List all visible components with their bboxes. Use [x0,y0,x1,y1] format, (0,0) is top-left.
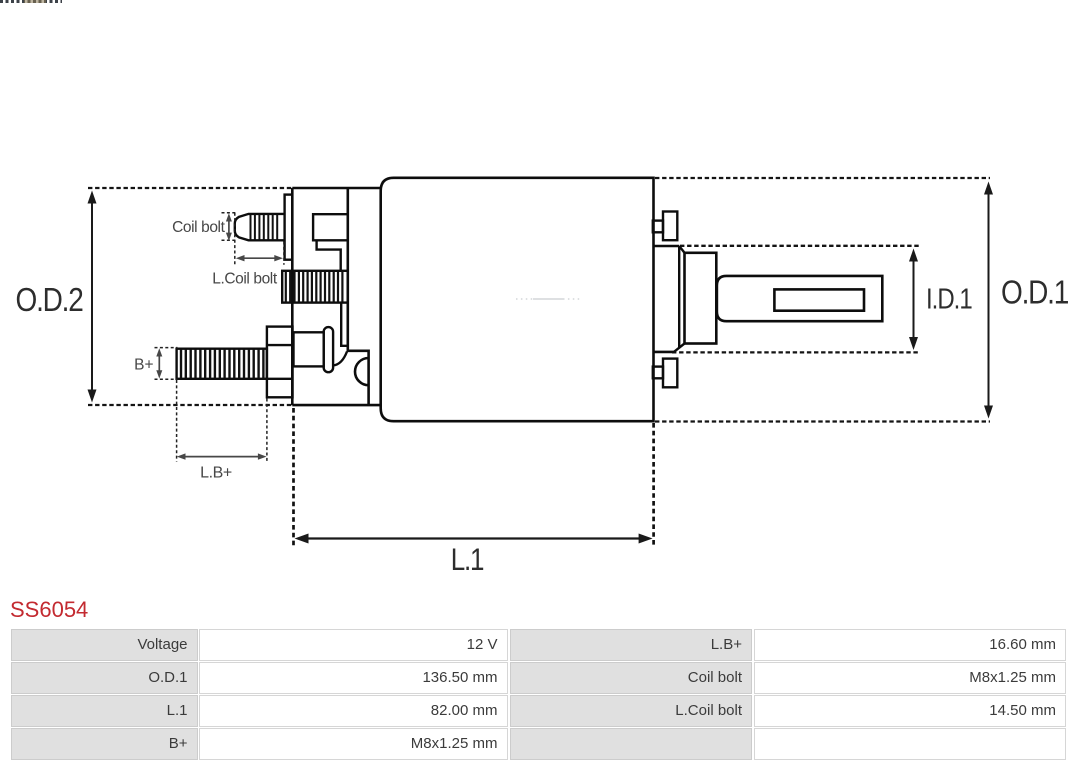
svg-text:I.D.1: I.D.1 [926,283,972,315]
svg-text:O.D.1: O.D.1 [1001,274,1068,311]
svg-text:O.D.2: O.D.2 [16,282,83,319]
svg-text:Coil bolt: Coil bolt [172,219,225,236]
svg-text:L.1: L.1 [451,543,484,578]
svg-text:L.B+: L.B+ [200,465,232,482]
svg-text:B+: B+ [134,357,153,374]
svg-text:L.Coil bolt: L.Coil bolt [212,271,278,288]
